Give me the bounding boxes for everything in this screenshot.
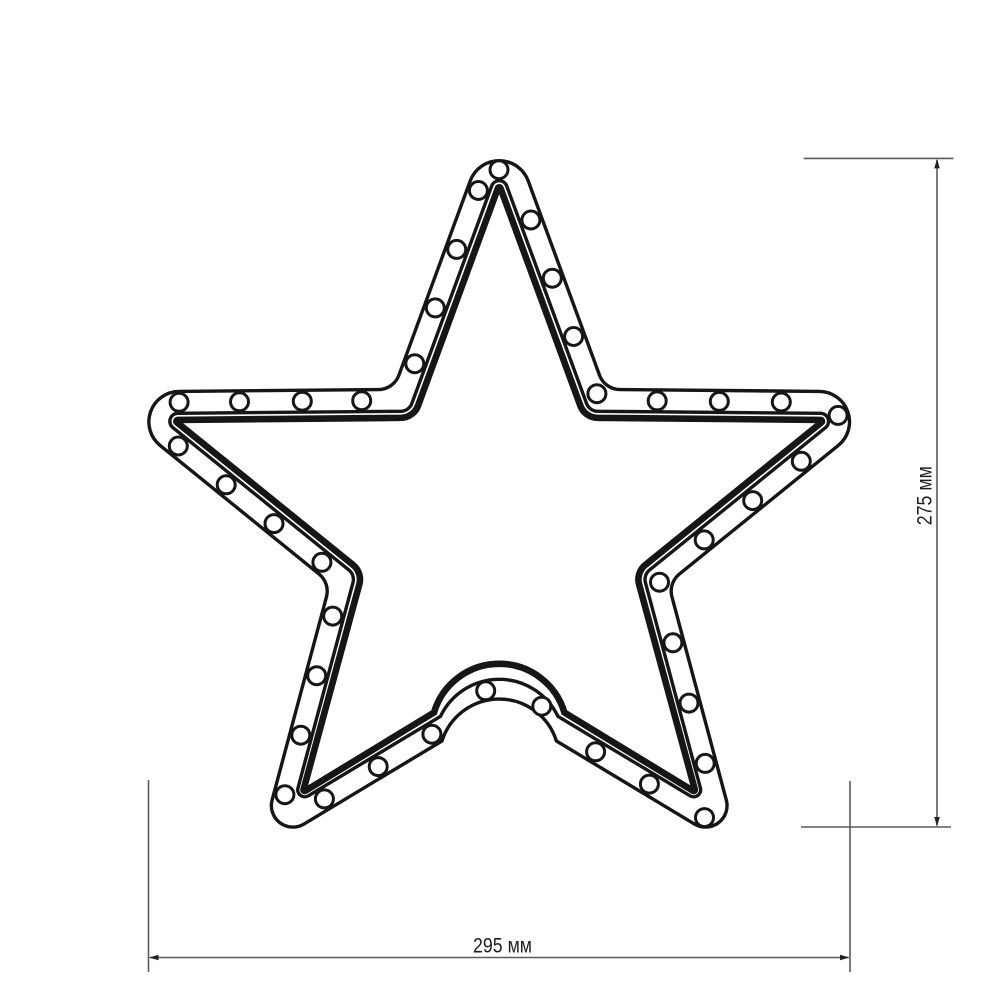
svg-text:275 мм: 275 мм: [913, 466, 936, 525]
svg-text:295 мм: 295 мм: [473, 934, 532, 957]
